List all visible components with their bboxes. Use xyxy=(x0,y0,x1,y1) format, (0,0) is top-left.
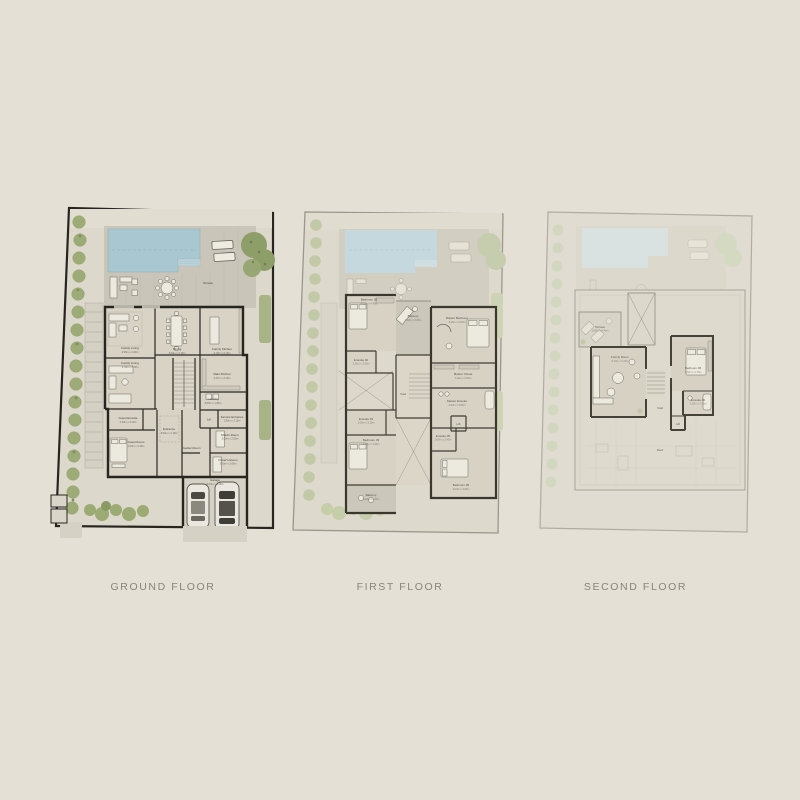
room-label-terrace: Terrace xyxy=(203,281,213,285)
room-label-master-bedroom: Master Bedroom xyxy=(446,316,469,320)
room-label-family-room: Family Room xyxy=(611,355,629,359)
room-label-ensuite-06: Ensuite 06 xyxy=(691,398,706,402)
room-label-master-closet: Master Closet xyxy=(454,372,473,376)
first-floor-title: FIRST FLOOR xyxy=(293,581,507,593)
swimming-pool xyxy=(108,229,200,272)
room-dims-bedroom-03: 4.20m x 4.40m xyxy=(363,442,380,446)
ghost-pool xyxy=(345,230,437,273)
room-dims-terrace: 3.85m x 4.40m xyxy=(592,329,609,333)
room-dims-family-living: 4.95m x 4.60m xyxy=(122,350,139,354)
room-dims-bedroom-05: 4.00m x 3.80m xyxy=(453,487,470,491)
room-dims-guest-ensuite: 2.30m x 3.10m xyxy=(120,420,137,424)
room-label-family-kitchen: Family Kitchen xyxy=(212,347,232,351)
room-dims-family-kitchen: 4.10m x 4.10m xyxy=(214,351,231,355)
room-dims-dining: 3.60m x 4.10m xyxy=(169,351,186,355)
room-label-bedroom-06: Bedroom 06 xyxy=(685,366,702,370)
room-dims-ensuite-06: 2.35m x 2.40m xyxy=(690,402,707,406)
room-dims-main-kitchen: 2.47m x 3.10m xyxy=(214,376,231,380)
room-dims-bedroom-02: 4.00m x 4.40m xyxy=(361,301,378,305)
room-dims-laundry: 3.05m x 1.80m xyxy=(205,401,222,405)
bedroom-03-bed-icon xyxy=(349,443,367,469)
room-dims-service-entrance: 1.80m x 3.10m xyxy=(224,419,241,423)
walkway-band xyxy=(306,213,502,230)
car-icon xyxy=(215,482,239,530)
first-floor-plan: Bedroom 02 4.00m x 4.40m Ensuite 02 2.30… xyxy=(291,203,507,540)
room-label-balcony: Balcony xyxy=(408,314,419,318)
room-dims-drivers-room: 3.00m x 2.60m xyxy=(220,462,237,466)
room-label-lift: Lift xyxy=(676,422,680,426)
room-label-bedroom-05: Bedroom 05 xyxy=(453,483,470,487)
room-dims-garage: 6.00m x 6.10m xyxy=(207,482,224,486)
ground-floor-title: GROUND FLOOR xyxy=(46,581,280,593)
room-dims-family-room: 5.40m x 5.00m xyxy=(612,359,629,363)
room-label-terrace: Terrace xyxy=(595,325,605,329)
room-label-service-entrance: Service Entrance xyxy=(221,415,244,419)
car-icon xyxy=(187,484,209,528)
room-dims-ensuite-02: 2.30m x 3.00m xyxy=(353,362,370,366)
room-label-drivers-room: Driver's Room xyxy=(219,458,238,462)
room-dims-maids-room: 3.00m x 2.60m xyxy=(222,437,239,441)
garden-trellis xyxy=(85,303,103,468)
bedroom-06-interior xyxy=(671,336,713,391)
room-label-bedroom-02: Bedroom 02 xyxy=(361,298,378,302)
room-label-family-living: Family Living xyxy=(121,346,139,350)
room-label-entrance: Entrance xyxy=(163,427,175,431)
pool-steps xyxy=(178,259,200,266)
room-label-ensuite-05: Ensuite 05 xyxy=(436,434,451,438)
room-dims-bedroom-06: 3.60m x 4.70m xyxy=(685,370,702,374)
stairs-icon xyxy=(646,369,666,399)
room-dims-balcony: 3.00m x 3.00m xyxy=(405,318,422,322)
room-label-dining: Dining xyxy=(173,347,182,351)
room-label-main-kitchen: Main Kitchen xyxy=(213,372,231,376)
room-dims-family-living-2: 3.70m x 3.70m xyxy=(122,365,139,369)
room-label-powder-room: Powder Room xyxy=(181,446,201,450)
room-label-family-living-2: Family Living xyxy=(121,361,139,365)
room-label-bedroom-03: Bedroom 03 xyxy=(363,438,380,442)
first-floor-drawing: Bedroom 02 4.00m x 4.40m Ensuite 02 2.30… xyxy=(291,203,507,540)
room-label-guest-room: Guest Room xyxy=(128,440,145,444)
second-floor-title: SECOND FLOOR xyxy=(531,581,740,593)
entry-gate-rooms xyxy=(51,495,67,523)
second-floor-plan: Terrace 3.85m x 4.40m Family Room 5.40m … xyxy=(536,206,762,538)
stairs-icon xyxy=(408,370,431,403)
stair-bulkhead xyxy=(628,293,655,345)
room-dims-ensuite-05: 2.00m x 2.40m xyxy=(435,438,452,442)
second-floor-drawing: Terrace 3.85m x 4.40m Family Room 5.40m … xyxy=(536,206,762,538)
room-label-balcony-2: Balcony xyxy=(366,493,377,497)
room-dims-ensuite-03: 2.00m x 3.10m xyxy=(358,421,375,425)
room-dims-master-ensuite: 3.00m x 3.80m xyxy=(449,403,466,407)
room-label-lift: Lift xyxy=(456,422,460,426)
stairs-icon xyxy=(174,359,195,408)
ground-floor-drawing: Terrace Family Living 4.95m x 4.60m Fami… xyxy=(46,200,280,548)
room-label-ensuite-03: Ensuite 03 xyxy=(359,417,374,421)
room-label-void: Void xyxy=(657,406,663,410)
bedroom-05-bed-icon xyxy=(441,459,468,477)
room-dims-guest-room: 4.00m x 4.40m xyxy=(128,444,145,448)
walkway-band xyxy=(70,209,272,228)
room-dims-entrance: 3.50m x 4.10m xyxy=(161,431,178,435)
room-label-maids-room: Maid's Room xyxy=(221,433,239,437)
room-label-void: Void xyxy=(400,392,406,396)
floor-plans-page: Terrace Family Living 4.95m x 4.60m Fami… xyxy=(0,0,800,800)
room-label-lift: Lift xyxy=(207,418,211,422)
ground-floor-plan: Terrace Family Living 4.95m x 4.60m Fami… xyxy=(46,200,280,548)
room-label-ensuite-02: Ensuite 02 xyxy=(354,358,369,362)
room-dims-master-bedroom: 4.00m x 5.00m xyxy=(449,320,466,324)
garden-trellis xyxy=(321,303,337,463)
room-label-guest-ensuite: Guest Ensuite xyxy=(119,416,138,420)
room-label-garage: Garage xyxy=(210,478,220,482)
terrace-dining-set-icon xyxy=(156,277,179,300)
room-dims-balcony-2: 3.10m x 4.40m xyxy=(363,497,380,501)
room-label-roof: Roof xyxy=(657,448,664,452)
room-dims-master-closet: 2.40m x 3.50m xyxy=(455,376,472,380)
room-label-laundry: Laundry xyxy=(208,397,219,401)
room-label-master-ensuite: Master Ensuite xyxy=(447,399,467,403)
